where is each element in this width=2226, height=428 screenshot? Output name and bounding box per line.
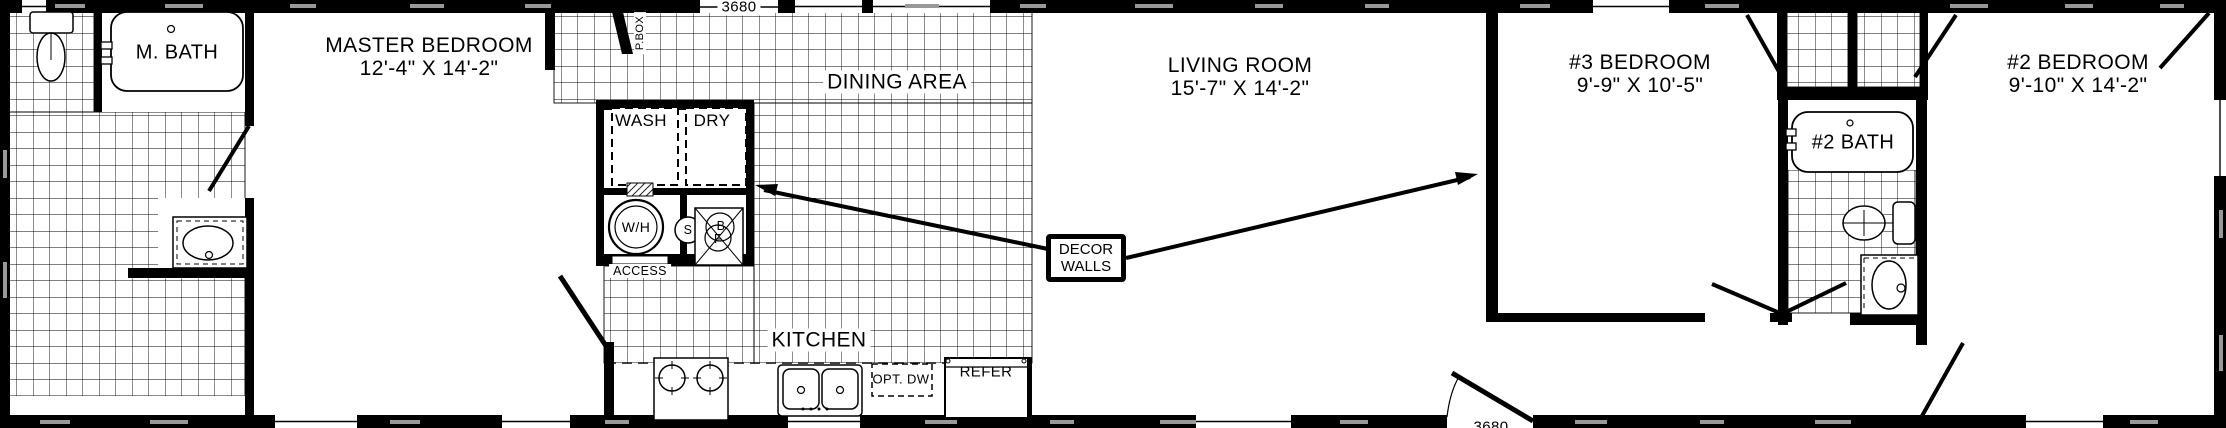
master-bedroom-door-leaf (560, 276, 610, 352)
bedroom2-name: #2 BEDROOM (2007, 51, 2149, 74)
master-bath-label: M. BATH (136, 42, 218, 65)
mbath-toilet-tank (30, 12, 73, 33)
dishwasher-label: OPT. DW (873, 372, 930, 387)
water-heater-label: W/H (622, 219, 650, 235)
bedroom3-dims: 9'-9" X 10'-5" (1569, 74, 1711, 97)
decor-walls-line2: WALLS (1051, 258, 1121, 275)
front-door-size-label: 3680 (718, 0, 761, 16)
washer-label: WASH (615, 111, 667, 131)
dining-floor (754, 103, 1032, 363)
closet-a-door-leaf (1747, 15, 1782, 77)
rear-door-leaf (1452, 373, 1533, 421)
bedroom2-label: #2 BEDROOM 9'-10" X 14'-2" (2007, 51, 2149, 97)
bedroom3-door-leaf (1712, 284, 1789, 317)
refrigerator-label: REFER (960, 364, 1013, 381)
mbath-sink (183, 226, 233, 260)
b-unit-label: B (717, 219, 726, 233)
closet-b-floor (1857, 8, 1920, 87)
master-bedroom-name: MASTER BEDROOM (325, 34, 532, 57)
living-room-name: LIVING ROOM (1168, 54, 1312, 77)
bedroom2-door-leaf (1922, 343, 1963, 416)
pbox-label: P.BOX (634, 12, 646, 54)
bedroom3-name: #3 BEDROOM (1569, 51, 1711, 74)
bath2-toilet-tank (1893, 202, 1915, 244)
closet-a-floor (1787, 8, 1848, 87)
kitchen-floor (604, 266, 754, 363)
floorplan: M. BATH MASTER BEDROOM 12'-4" X 14'-2" P… (0, 0, 2226, 428)
f-unit-label: F (714, 232, 722, 246)
hatch-mark (627, 183, 653, 196)
bedroom3-label: #3 BEDROOM 9'-9" X 10'-5" (1569, 51, 1711, 97)
s-unit-label: S (684, 223, 693, 237)
living-room-label: LIVING ROOM 15'-7" X 14'-2" (1168, 54, 1312, 100)
corner-door-leaf (2160, 13, 2209, 68)
decor-arrow-right (1126, 177, 1470, 258)
dining-area-label: DINING AREA (823, 71, 971, 94)
living-room-dims: 15'-7" X 14'-2" (1168, 77, 1312, 100)
bedroom2-dims: 9'-10" X 14'-2" (2007, 74, 2149, 97)
access-panel (612, 256, 668, 264)
access-label: ACCESS (609, 264, 671, 278)
decor-walls-callout: DECOR WALLS (1046, 234, 1126, 282)
kitchen-label: KITCHEN (768, 329, 871, 352)
decor-walls-line1: DECOR (1051, 241, 1121, 258)
bath2-sink (1872, 261, 1906, 309)
rear-door-size-label: 3680 (1470, 419, 1513, 428)
dryer-label: DRY (694, 111, 731, 131)
master-bedroom-label: MASTER BEDROOM 12'-4" X 14'-2" (325, 34, 532, 80)
master-bedroom-dims: 12'-4" X 14'-2" (325, 57, 532, 80)
rear-door-swing (1447, 375, 1460, 417)
bath2-label: #2 BATH (1812, 132, 1894, 155)
